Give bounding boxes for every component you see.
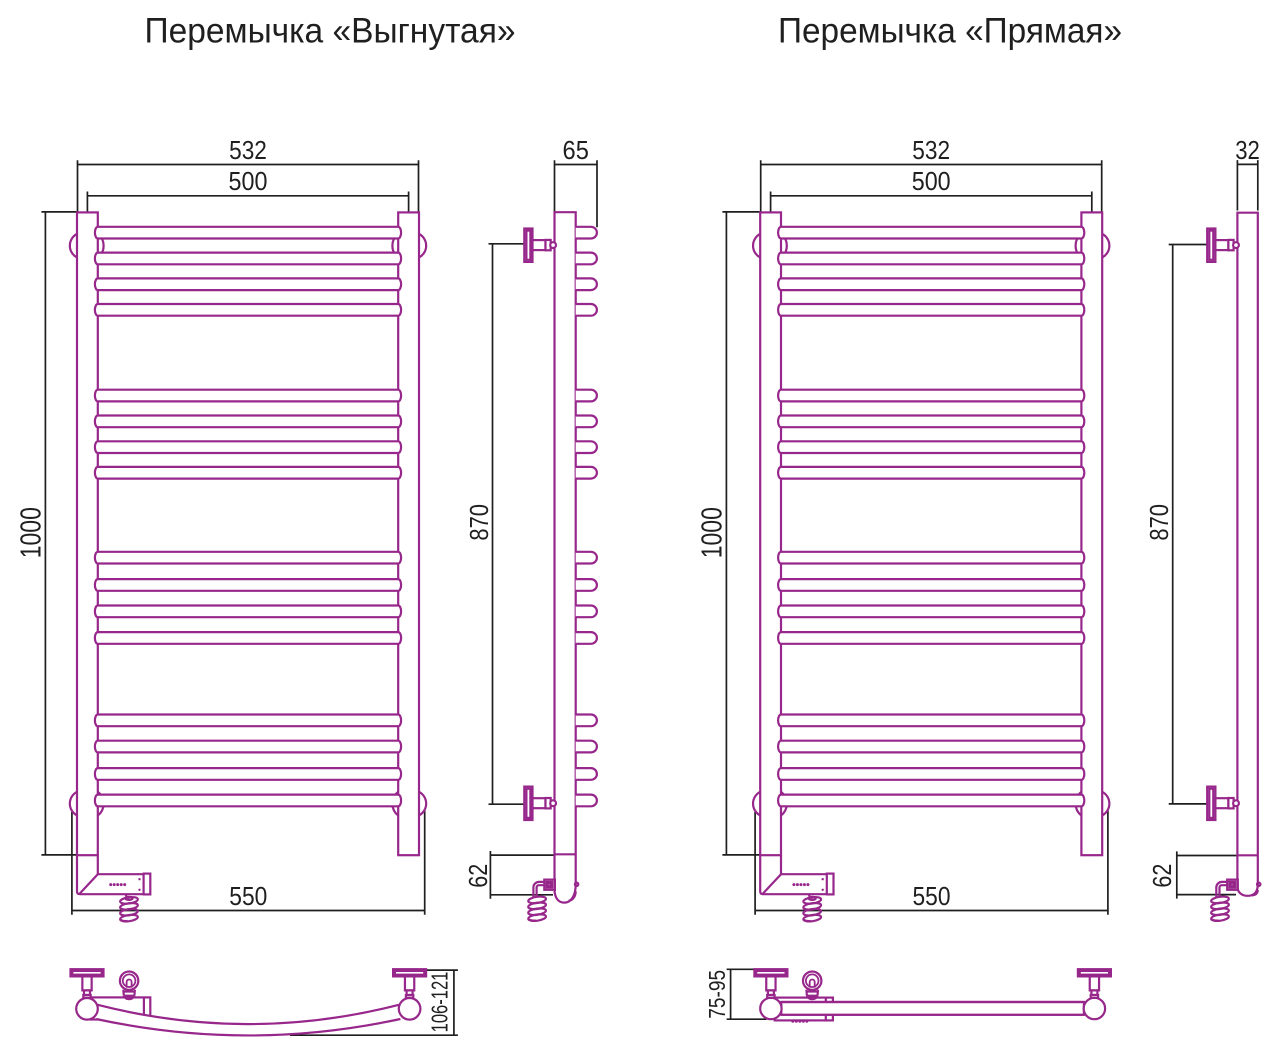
svg-text:870: 870	[464, 504, 494, 541]
svg-text:65: 65	[563, 135, 589, 165]
svg-text:106-121: 106-121	[426, 972, 452, 1033]
svg-text:532: 532	[912, 135, 950, 165]
svg-text:550: 550	[913, 881, 951, 911]
svg-text:500: 500	[912, 166, 951, 196]
svg-text:870: 870	[1144, 504, 1174, 541]
svg-text:1000: 1000	[16, 507, 48, 558]
svg-text:62: 62	[463, 864, 493, 888]
svg-text:532: 532	[229, 135, 267, 165]
svg-text:550: 550	[229, 881, 267, 911]
svg-text:500: 500	[229, 166, 268, 196]
svg-text:1000: 1000	[697, 507, 729, 558]
svg-text:32: 32	[1235, 135, 1260, 165]
svg-text:Перемычка «Выгнутая»: Перемычка «Выгнутая»	[145, 12, 516, 51]
svg-text:75-95: 75-95	[704, 970, 730, 1019]
svg-text:62: 62	[1147, 864, 1177, 888]
svg-text:Перемычка «Прямая»: Перемычка «Прямая»	[778, 12, 1122, 51]
